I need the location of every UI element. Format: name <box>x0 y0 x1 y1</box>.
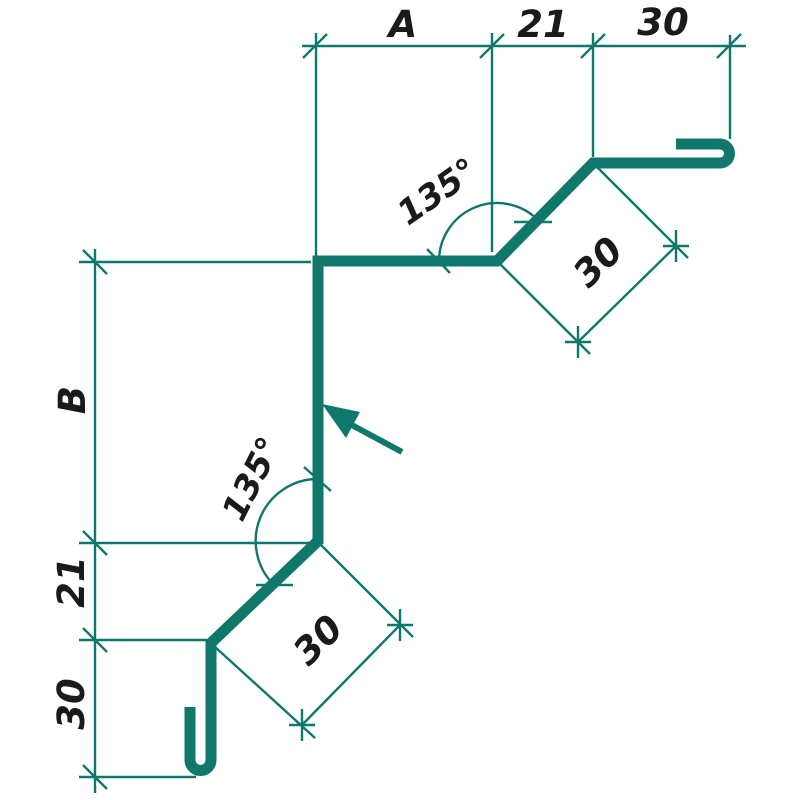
dim-label-top-21: 21 <box>517 3 569 46</box>
dim-label-diag-lower-30: 30 <box>285 607 352 674</box>
dimension-ticks <box>83 34 741 789</box>
dim-label-diag-upper-30: 30 <box>565 229 632 296</box>
dim-label-left-21: 21 <box>50 556 93 608</box>
dim-label-top-30: 30 <box>637 1 689 44</box>
dim-label-left-b: B <box>51 386 94 414</box>
dim-label-left-30: 30 <box>50 678 93 730</box>
angle-label-upper: 135° <box>390 150 485 233</box>
arrow-head-icon <box>322 404 360 438</box>
extension-lines <box>79 33 730 777</box>
profile-diagram-svg: A 21 30 B 21 30 30 30 135° 135° <box>0 0 800 800</box>
thickness-arrow <box>322 404 402 452</box>
arrow-tail <box>350 424 402 452</box>
dim-label-top-a: A <box>386 3 418 46</box>
angle-label-lower: 135° <box>214 431 290 528</box>
drawing-canvas: A 21 30 B 21 30 30 30 135° 135° <box>0 0 800 800</box>
